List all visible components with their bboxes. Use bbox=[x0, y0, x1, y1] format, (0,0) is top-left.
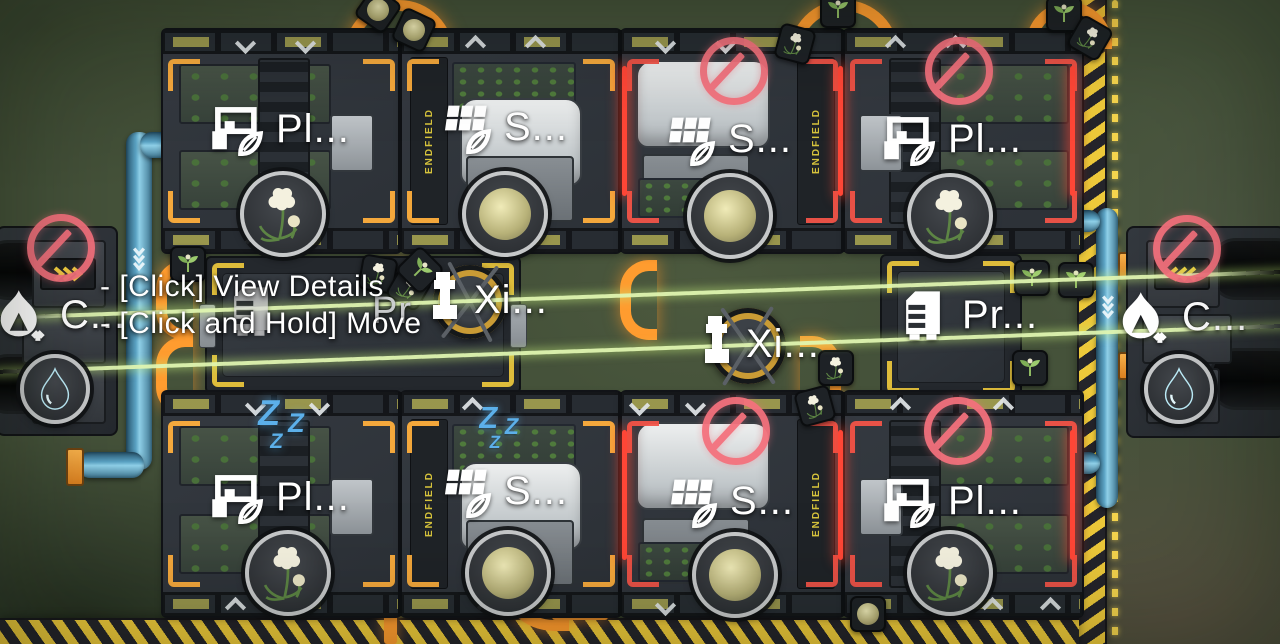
collector-icon bbox=[1116, 290, 1170, 344]
prohibition-icon bbox=[925, 37, 993, 105]
label-water-collector-right[interactable]: C... bbox=[1116, 290, 1248, 344]
label-seeder-top-1[interactable]: S... bbox=[438, 100, 568, 154]
idle-sleep-icon: Z Z Z bbox=[258, 398, 328, 468]
water-drop-icon bbox=[1156, 366, 1202, 412]
belt-item-flower bbox=[818, 350, 854, 386]
label-seeder-bottom-2[interactable]: S... bbox=[664, 474, 794, 528]
endfield-brand-text: ENDFIELD bbox=[811, 471, 822, 537]
sleep-z-glyph: Z bbox=[268, 430, 284, 454]
output-badge-seeds bbox=[462, 171, 548, 257]
sleep-z-glyph: Z bbox=[477, 400, 501, 436]
building-label-text: S... bbox=[730, 479, 794, 524]
tooltip-line-move: - [Click and Hold] Move bbox=[100, 305, 422, 342]
seeds-icon bbox=[704, 190, 756, 242]
error-glow-strip bbox=[622, 430, 627, 560]
building-label-text: Pl... bbox=[948, 117, 1022, 162]
output-badge-flower bbox=[240, 171, 326, 257]
prohibition-icon bbox=[1153, 215, 1221, 283]
label-planter-top-1[interactable]: Pl... bbox=[210, 102, 350, 156]
sleep-z-glyph: Z bbox=[286, 408, 307, 439]
flower-icon bbox=[921, 187, 979, 245]
label-xiranite-2[interactable]: Xi... bbox=[700, 314, 820, 374]
label-planter-top-2[interactable]: Pl... bbox=[882, 112, 1022, 166]
seeder-icon bbox=[438, 464, 492, 518]
collector-icon bbox=[0, 288, 48, 342]
planter-icon bbox=[210, 102, 264, 156]
building-seam bbox=[398, 30, 402, 252]
output-badge-water bbox=[1144, 354, 1214, 424]
error-glow-strip bbox=[838, 66, 843, 196]
output-badge-seeds bbox=[465, 530, 551, 616]
error-glow-strip bbox=[622, 66, 627, 196]
label-xiranite-1[interactable]: Xi... bbox=[428, 270, 548, 330]
planter-icon bbox=[882, 474, 936, 528]
building-label-text: S... bbox=[504, 105, 568, 150]
error-glow-strip bbox=[838, 430, 843, 560]
label-seeder-bottom-1[interactable]: S... bbox=[438, 464, 568, 518]
building-label-text: Xi... bbox=[474, 278, 548, 323]
seeder-icon bbox=[438, 100, 492, 154]
output-badge-flower bbox=[907, 173, 993, 259]
seeds-icon bbox=[709, 549, 761, 601]
building-label-text: Pl... bbox=[948, 479, 1022, 524]
belt-item-seeds bbox=[850, 596, 886, 632]
tooltip-line-view-details: - [Click] View Details bbox=[100, 268, 422, 305]
error-glow-strip bbox=[1070, 430, 1075, 560]
seeds-icon bbox=[479, 188, 531, 240]
seeder-icon bbox=[664, 474, 718, 528]
building-label-text: S... bbox=[504, 469, 568, 514]
output-badge-flower bbox=[245, 530, 331, 616]
endfield-brand-text: ENDFIELD bbox=[424, 471, 435, 537]
prohibition-icon bbox=[702, 397, 770, 465]
belt-item-sprout bbox=[1012, 350, 1048, 386]
xiranite-tower-icon bbox=[428, 270, 462, 330]
output-badge-seeds bbox=[692, 532, 778, 618]
output-badge-flower bbox=[907, 530, 993, 616]
building-label-text: Pl... bbox=[276, 107, 350, 152]
flower-icon bbox=[254, 185, 312, 243]
water-pipe bbox=[78, 452, 144, 478]
building-seam bbox=[398, 392, 402, 616]
label-planter-bottom-1[interactable]: Pl... bbox=[210, 470, 350, 524]
game-viewport: ENDFIELD ENDFIELD bbox=[0, 0, 1280, 644]
planter-icon bbox=[882, 112, 936, 166]
label-seeder-top-2[interactable]: S... bbox=[662, 112, 792, 166]
prohibition-icon bbox=[924, 397, 992, 465]
seeder-icon bbox=[662, 112, 716, 166]
belt-lane bbox=[163, 30, 400, 54]
hover-tooltip: - [Click] View Details - [Click and Hold… bbox=[100, 268, 422, 342]
label-processor-right[interactable]: Pr... bbox=[896, 288, 1038, 342]
building-label-text: C... bbox=[1182, 295, 1248, 340]
processor-icon bbox=[896, 288, 950, 342]
output-badge-seeds bbox=[687, 173, 773, 259]
building-label-text: Pl... bbox=[276, 475, 350, 520]
prohibition-icon bbox=[27, 214, 95, 282]
xiranite-tower-icon bbox=[700, 314, 734, 374]
pipe-flow-chevrons-icon bbox=[1101, 295, 1115, 319]
sleep-z-glyph: Z bbox=[255, 392, 283, 434]
seeds-icon bbox=[482, 547, 534, 599]
building-label-text: Xi... bbox=[746, 322, 820, 367]
flower-icon bbox=[921, 544, 979, 602]
pipe-connector bbox=[66, 448, 84, 486]
conveyor-curve bbox=[620, 260, 657, 340]
label-planter-bottom-2[interactable]: Pl... bbox=[882, 474, 1022, 528]
output-badge-water bbox=[20, 354, 90, 424]
sleep-z-glyph: Z bbox=[503, 414, 521, 440]
planter-icon bbox=[210, 470, 264, 524]
error-glow-strip bbox=[1070, 66, 1075, 196]
belt-item-sprout bbox=[820, 0, 856, 28]
water-drop-icon bbox=[32, 366, 78, 412]
belt-lane bbox=[402, 30, 620, 54]
endfield-brand-text: ENDFIELD bbox=[424, 108, 435, 174]
idle-sleep-icon: Z Z Z bbox=[479, 405, 539, 465]
building-label-text: S... bbox=[728, 117, 792, 162]
sleep-z-glyph: Z bbox=[488, 432, 502, 452]
prohibition-icon bbox=[700, 37, 768, 105]
endfield-brand-text: ENDFIELD bbox=[811, 108, 822, 174]
flower-icon bbox=[259, 544, 317, 602]
building-label-text: Pr... bbox=[962, 293, 1038, 338]
